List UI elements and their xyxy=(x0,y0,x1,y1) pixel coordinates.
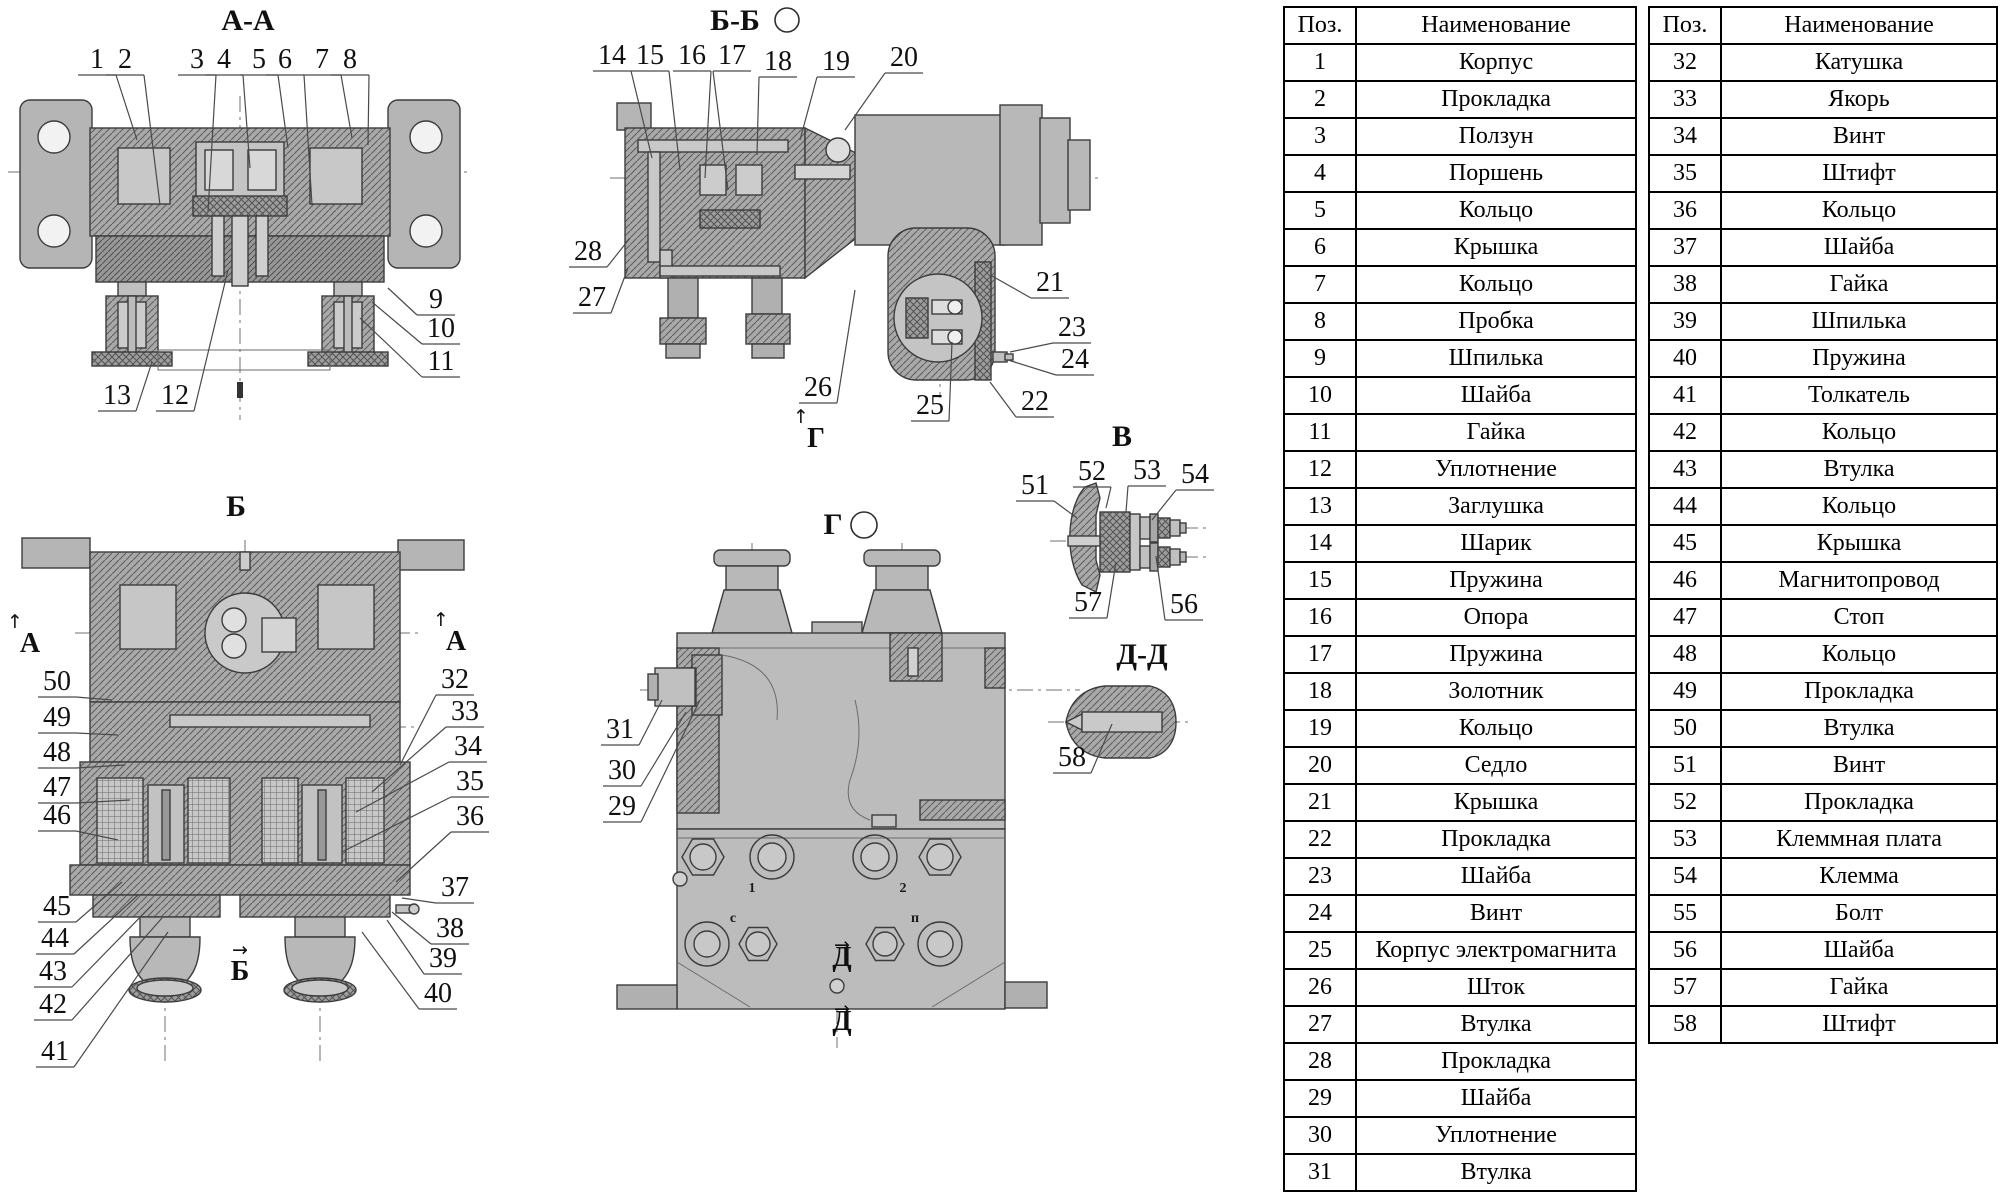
callout-b-48: 48 xyxy=(43,737,71,768)
section-marker-А-0: А↑ xyxy=(7,611,41,659)
callout-g-29: 29 xyxy=(608,791,636,822)
callout-b-43: 43 xyxy=(39,956,67,987)
pusher-left xyxy=(162,790,170,860)
ball-lower xyxy=(222,634,246,658)
part-name: Шпилька xyxy=(1356,340,1636,377)
callout-leader-31 xyxy=(639,700,662,745)
port-hole xyxy=(746,932,770,956)
section-marker-Б-2: Б→ xyxy=(231,939,250,987)
part-name: Уплотнение xyxy=(1356,1117,1636,1154)
callout-bb-20: 20 xyxy=(890,42,918,73)
slider-window xyxy=(248,150,276,190)
part-pos: 23 xyxy=(1284,858,1356,895)
view-title-circle-g xyxy=(851,512,877,538)
part-name: Катушка xyxy=(1721,44,1997,81)
callout-leader-24 xyxy=(1008,360,1056,375)
part-pos: 43 xyxy=(1649,451,1721,488)
view-title-v: В xyxy=(1112,420,1132,453)
callout-b-44: 44 xyxy=(41,923,69,954)
callout-bb-28: 28 xyxy=(574,236,602,267)
port-hole-inner xyxy=(694,931,720,957)
spring-assembly-left xyxy=(92,282,172,366)
callout-leader-12 xyxy=(194,270,228,411)
part-pos: 44 xyxy=(1649,488,1721,525)
marker-letter: Г xyxy=(807,423,825,454)
view-title-dd: Д-Д xyxy=(1116,638,1168,671)
callout-aa-12: 12 xyxy=(161,380,189,411)
edge-hatch xyxy=(985,648,1005,688)
callout-leader-54 xyxy=(1152,490,1176,520)
part-name: Пружина xyxy=(1356,562,1636,599)
part-name: Винт xyxy=(1721,118,1997,155)
callout-leader-9 xyxy=(388,288,417,315)
terminal-nut xyxy=(948,330,962,344)
callout-b-45: 45 xyxy=(43,891,71,922)
section-marker-А-1: А↑ xyxy=(433,609,467,657)
port-hole xyxy=(927,844,953,870)
callout-aa-1: 1 xyxy=(90,44,104,75)
part-name: Втулка xyxy=(1356,1154,1636,1191)
callout-bb-23: 23 xyxy=(1058,312,1086,343)
edge-band xyxy=(920,800,1005,820)
table-row: 33Якорь xyxy=(1649,81,1997,118)
arrow-up-icon: ↑ xyxy=(7,611,23,633)
callout-leader-52 xyxy=(1106,487,1111,508)
bottom-stud-right xyxy=(746,278,790,358)
callout-b-47: 47 xyxy=(43,772,71,803)
part-pos: 28 xyxy=(1284,1043,1356,1080)
part-pos: 16 xyxy=(1284,599,1356,636)
callout-aa-13: 13 xyxy=(103,380,131,411)
part-pos: 8 xyxy=(1284,303,1356,340)
part-name: Прокладка xyxy=(1356,821,1636,858)
part-name: Гайка xyxy=(1356,414,1636,451)
part-name: Корпус электромагнита xyxy=(1356,932,1636,969)
part-name: Втулка xyxy=(1721,710,1997,747)
flange-step-right xyxy=(240,895,390,917)
part-pos: 51 xyxy=(1649,747,1721,784)
assembly-drawing: А-А12345678910111312Б-Б14151617181920282… xyxy=(0,0,1280,1198)
part-name: Уплотнение xyxy=(1356,451,1636,488)
table-row: 23Шайба xyxy=(1284,858,1636,895)
part-pos: 10 xyxy=(1284,377,1356,414)
view-title-bb: Б-Б xyxy=(710,4,760,37)
callout-g-31: 31 xyxy=(606,714,634,745)
ball xyxy=(826,138,850,162)
part-name: Втулка xyxy=(1356,1006,1636,1043)
callout-leader-37 xyxy=(402,898,436,903)
top-pin xyxy=(240,552,250,570)
part-pos: 7 xyxy=(1284,266,1356,303)
part-name: Пружина xyxy=(1356,636,1636,673)
port-label-2: 2 xyxy=(900,881,907,896)
foot-left xyxy=(617,985,677,1009)
table-row: 1Корпус xyxy=(1284,44,1636,81)
port-tower-right xyxy=(862,550,942,633)
table-row: 7Кольцо xyxy=(1284,266,1636,303)
foot-right xyxy=(1005,982,1047,1008)
callout-aa-9: 9 xyxy=(429,284,443,315)
callout-bb-19: 19 xyxy=(822,46,850,77)
table-row: 56Шайба xyxy=(1649,932,1997,969)
part-pos: 52 xyxy=(1649,784,1721,821)
part-name: Прокладка xyxy=(1356,1043,1636,1080)
header-pos: Поз. xyxy=(1649,7,1721,44)
part-pos: 29 xyxy=(1284,1080,1356,1117)
center-tab xyxy=(812,622,862,634)
part-pos: 37 xyxy=(1649,229,1721,266)
table-row: 49Прокладка xyxy=(1649,673,1997,710)
piston-left xyxy=(118,148,170,204)
part-name: Кольцо xyxy=(1721,192,1997,229)
view-section-bb xyxy=(610,103,1100,398)
bottom-stud-left xyxy=(660,278,706,358)
ball-upper xyxy=(222,608,246,632)
bore-right xyxy=(318,585,374,649)
callout-v-54: 54 xyxy=(1181,459,1209,490)
table-row: 37Шайба xyxy=(1649,229,1997,266)
coil-winding xyxy=(97,778,143,863)
part-name: Поршень xyxy=(1356,155,1636,192)
bottom-flange xyxy=(70,865,410,895)
seat-insert xyxy=(262,618,296,652)
ball-seat xyxy=(700,165,726,195)
table-row: 50Втулка xyxy=(1649,710,1997,747)
callout-v-57: 57 xyxy=(1074,587,1102,618)
tab-right xyxy=(398,540,464,570)
callout-bb-18: 18 xyxy=(764,46,792,77)
part-pos: 54 xyxy=(1649,858,1721,895)
part-name: Корпус xyxy=(1356,44,1636,81)
part-name: Толкатель xyxy=(1721,377,1997,414)
table-row: 43Втулка xyxy=(1649,451,1997,488)
callout-b-41: 41 xyxy=(41,1036,69,1067)
callout-aa-3: 3 xyxy=(190,44,204,75)
part-name: Клемма xyxy=(1721,858,1997,895)
arrow-right-icon: → xyxy=(834,998,850,1020)
part-name: Кольцо xyxy=(1356,710,1636,747)
channel-left xyxy=(648,152,660,262)
table-row: 26Шток xyxy=(1284,969,1636,1006)
part-pos: 46 xyxy=(1649,562,1721,599)
table-row: 18Золотник xyxy=(1284,673,1636,710)
callout-leader-23 xyxy=(1010,343,1053,352)
part-name: Седло xyxy=(1356,747,1636,784)
callout-leader-32 xyxy=(400,695,436,765)
callout-leader-26 xyxy=(837,290,855,403)
arrow-up-icon: ↑ xyxy=(433,609,449,631)
port-hole-inner xyxy=(861,843,889,871)
part-name: Заглушка xyxy=(1356,488,1636,525)
part-name: Винт xyxy=(1721,747,1997,784)
port-label-п: п xyxy=(911,911,919,926)
callout-aa-10: 10 xyxy=(427,313,455,344)
part-pos: 14 xyxy=(1284,525,1356,562)
part-pos: 55 xyxy=(1649,895,1721,932)
table-row: 39Шпилька xyxy=(1649,303,1997,340)
spring-pocket xyxy=(736,165,762,195)
wire-clip xyxy=(872,815,896,827)
part-pos: 31 xyxy=(1284,1154,1356,1191)
marker-letter: А xyxy=(20,628,41,659)
table-row: 55Болт xyxy=(1649,895,1997,932)
table-row: 47Стоп xyxy=(1649,599,1997,636)
part-pos: 49 xyxy=(1649,673,1721,710)
callout-aa-2: 2 xyxy=(118,44,132,75)
part-pos: 45 xyxy=(1649,525,1721,562)
callout-leader-38 xyxy=(392,912,431,944)
callout-bb-26: 26 xyxy=(804,372,832,403)
stem xyxy=(212,216,224,276)
pilot-hole-dd xyxy=(830,979,844,993)
part-name: Крышка xyxy=(1721,525,1997,562)
header-name: Наименование xyxy=(1356,7,1636,44)
callout-b-40: 40 xyxy=(424,978,452,1009)
part-name: Клеммная плата xyxy=(1721,821,1997,858)
callout-bb-25: 25 xyxy=(916,390,944,421)
table-row: 30Уплотнение xyxy=(1284,1117,1636,1154)
arrow-right-icon: → xyxy=(232,939,248,961)
table-row: 22Прокладка xyxy=(1284,821,1636,858)
part-pos: 27 xyxy=(1284,1006,1356,1043)
part-name: Пробка xyxy=(1356,303,1636,340)
callout-aa-8: 8 xyxy=(343,44,357,75)
table-row: 51Винт xyxy=(1649,747,1997,784)
callout-bb-27: 27 xyxy=(578,282,606,313)
callout-b-32: 32 xyxy=(441,664,469,695)
part-name: Золотник xyxy=(1356,673,1636,710)
channel-top xyxy=(638,140,788,152)
callout-b-38: 38 xyxy=(436,913,464,944)
callout-aa-11: 11 xyxy=(428,346,455,377)
part-name: Стоп xyxy=(1721,599,1997,636)
plunger-bell-right xyxy=(284,917,356,1002)
center-tick xyxy=(237,382,243,398)
cover-washer xyxy=(1005,354,1013,360)
table-row: 42Кольцо xyxy=(1649,414,1997,451)
part-pos: 2 xyxy=(1284,81,1356,118)
table-row: 14Шарик xyxy=(1284,525,1636,562)
part-name: Гайка xyxy=(1721,969,1997,1006)
part-name: Шарик xyxy=(1356,525,1636,562)
piston-right xyxy=(310,148,362,204)
part-pos: 26 xyxy=(1284,969,1356,1006)
table-row: 12Уплотнение xyxy=(1284,451,1636,488)
part-pos: 32 xyxy=(1649,44,1721,81)
section-marker-Д-5: Д→ xyxy=(832,998,851,1037)
header-name: Наименование xyxy=(1721,7,1997,44)
part-pos: 11 xyxy=(1284,414,1356,451)
part-name: Кольцо xyxy=(1721,414,1997,451)
channel-horizontal xyxy=(660,266,780,276)
table-row: 28Прокладка xyxy=(1284,1043,1636,1080)
callout-bb-22: 22 xyxy=(1021,386,1049,417)
callout-leader-10 xyxy=(372,302,422,344)
callout-b-46: 46 xyxy=(43,800,71,831)
table-row: 54Клемма xyxy=(1649,858,1997,895)
part-pos: 41 xyxy=(1649,377,1721,414)
bore-left xyxy=(120,585,176,649)
part-pos: 22 xyxy=(1284,821,1356,858)
view-detail-v xyxy=(1050,483,1210,592)
side-port-cap xyxy=(648,674,658,700)
side-port-bushing xyxy=(655,668,695,706)
seal-strip xyxy=(193,196,287,216)
callout-leader-22 xyxy=(990,382,1016,417)
part-name: Шайба xyxy=(1356,858,1636,895)
part-pos: 33 xyxy=(1649,81,1721,118)
callout-g-30: 30 xyxy=(608,755,636,786)
table-row: 35Штифт xyxy=(1649,155,1997,192)
view-section-aa xyxy=(8,96,472,420)
terminal-plate xyxy=(1100,512,1130,572)
callout-v-56: 56 xyxy=(1170,589,1198,620)
callout-bb-21: 21 xyxy=(1036,267,1064,298)
table-row: 8Пробка xyxy=(1284,303,1636,340)
table-row: 34Винт xyxy=(1649,118,1997,155)
callout-v-52: 52 xyxy=(1078,456,1106,487)
part-name: Винт xyxy=(1356,895,1636,932)
view-title-circle-bb xyxy=(775,8,799,32)
parts-table-1: Поз. Наименование 1Корпус2Прокладка3Полз… xyxy=(1283,6,1637,1192)
table-row: 41Толкатель xyxy=(1649,377,1997,414)
terminal-block xyxy=(906,298,928,338)
part-name: Пружина xyxy=(1721,340,1997,377)
part-name: Шайба xyxy=(1356,1080,1636,1117)
callout-bb-16: 16 xyxy=(678,40,706,71)
table-row: 16Опора xyxy=(1284,599,1636,636)
part-pos: 39 xyxy=(1649,303,1721,340)
part-pos: 4 xyxy=(1284,155,1356,192)
part-pos: 47 xyxy=(1649,599,1721,636)
part-name: Шпилька xyxy=(1721,303,1997,340)
part-name: Прокладка xyxy=(1721,784,1997,821)
flange-step-left xyxy=(93,895,220,917)
pilot-hole xyxy=(673,872,687,886)
part-name: Якорь xyxy=(1721,81,1997,118)
coil-winding xyxy=(188,778,230,863)
bolt-hole xyxy=(410,215,442,247)
table-row: 17Пружина xyxy=(1284,636,1636,673)
part-pos: 40 xyxy=(1649,340,1721,377)
part-pos: 56 xyxy=(1649,932,1721,969)
top-flange-tab xyxy=(617,103,651,130)
table-row: 52Прокладка xyxy=(1649,784,1997,821)
callout-b-42: 42 xyxy=(39,989,67,1020)
electromagnet-section xyxy=(888,228,1013,380)
callout-b-50: 50 xyxy=(43,666,71,697)
table-row: 5Кольцо xyxy=(1284,192,1636,229)
part-pos: 50 xyxy=(1649,710,1721,747)
table-row: 9Шпилька xyxy=(1284,340,1636,377)
callout-aa-4: 4 xyxy=(217,44,231,75)
part-pos: 6 xyxy=(1284,229,1356,266)
part-pos: 24 xyxy=(1284,895,1356,932)
table-row: 24Винт xyxy=(1284,895,1636,932)
part-name: Ползун xyxy=(1356,118,1636,155)
table-row: 48Кольцо xyxy=(1649,636,1997,673)
part-pos: 19 xyxy=(1284,710,1356,747)
table-row: 38Гайка xyxy=(1649,266,1997,303)
callout-b-37: 37 xyxy=(441,872,469,903)
part-name: Болт xyxy=(1721,895,1997,932)
table-row: 2Прокладка xyxy=(1284,81,1636,118)
part-name: Кольцо xyxy=(1721,636,1997,673)
callout-leader-40 xyxy=(362,932,419,1009)
table-row: 58Штифт xyxy=(1649,1006,1997,1043)
callout-leader-21 xyxy=(992,276,1031,298)
part-pos: 25 xyxy=(1284,932,1356,969)
port-hole-inner xyxy=(758,843,786,871)
table-row: 10Шайба xyxy=(1284,377,1636,414)
part-name: Шайба xyxy=(1721,229,1997,266)
callout-leader-27 xyxy=(611,268,628,313)
pocket-screw xyxy=(908,648,918,676)
part-pos: 30 xyxy=(1284,1117,1356,1154)
callout-b-39: 39 xyxy=(429,943,457,974)
part-pos: 15 xyxy=(1284,562,1356,599)
callout-aa-7: 7 xyxy=(315,44,329,75)
part-pos: 57 xyxy=(1649,969,1721,1006)
view-title-aa: А-А xyxy=(221,4,275,37)
part-name: Втулка xyxy=(1721,451,1997,488)
part-pos: 35 xyxy=(1649,155,1721,192)
part-name: Шток xyxy=(1356,969,1636,1006)
terminal-bolt-upper xyxy=(1140,514,1186,542)
part-name: Штифт xyxy=(1721,155,1997,192)
table-row: 29Шайба xyxy=(1284,1080,1636,1117)
table-row: 3Ползун xyxy=(1284,118,1636,155)
part-pos: 58 xyxy=(1649,1006,1721,1043)
callout-aa-6: 6 xyxy=(278,44,292,75)
coil-winding xyxy=(262,778,298,863)
part-pos: 38 xyxy=(1649,266,1721,303)
callout-b-35: 35 xyxy=(456,766,484,797)
part-name: Опора xyxy=(1356,599,1636,636)
part-pos: 53 xyxy=(1649,821,1721,858)
section-marker-Г-3: Г↑ xyxy=(793,406,825,454)
spool-end xyxy=(795,165,850,179)
cross-channel xyxy=(170,715,370,727)
part-name: Прокладка xyxy=(1356,81,1636,118)
table-row: 13Заглушка xyxy=(1284,488,1636,525)
port-hole xyxy=(873,932,897,956)
part-name: Магнитопровод xyxy=(1721,562,1997,599)
view-title-b: Б xyxy=(226,490,246,523)
callout-bb-14: 14 xyxy=(598,40,626,71)
callout-b-49: 49 xyxy=(43,702,71,733)
table-row: 53Клеммная плата xyxy=(1649,821,1997,858)
part-name: Кольцо xyxy=(1721,488,1997,525)
view-title-g: Г xyxy=(823,508,842,541)
callout-bb-24: 24 xyxy=(1061,344,1089,375)
table-row: 36Кольцо xyxy=(1649,192,1997,229)
table-row: 45Крышка xyxy=(1649,525,1997,562)
part-pos: 5 xyxy=(1284,192,1356,229)
bolt-hole xyxy=(38,121,70,153)
callout-aa-5: 5 xyxy=(252,44,266,75)
bolt-hole xyxy=(410,121,442,153)
table-row: 15Пружина xyxy=(1284,562,1636,599)
callout-b-36: 36 xyxy=(456,801,484,832)
part-name: Кольцо xyxy=(1356,266,1636,303)
section-marker-Д-4: Д→ xyxy=(832,934,851,973)
callout-bb-17: 17 xyxy=(718,40,746,71)
part-name: Кольцо xyxy=(1356,192,1636,229)
table-row: 46Магнитопровод xyxy=(1649,562,1997,599)
callout-leader-39 xyxy=(387,920,424,974)
port-label-1: 1 xyxy=(749,881,756,896)
